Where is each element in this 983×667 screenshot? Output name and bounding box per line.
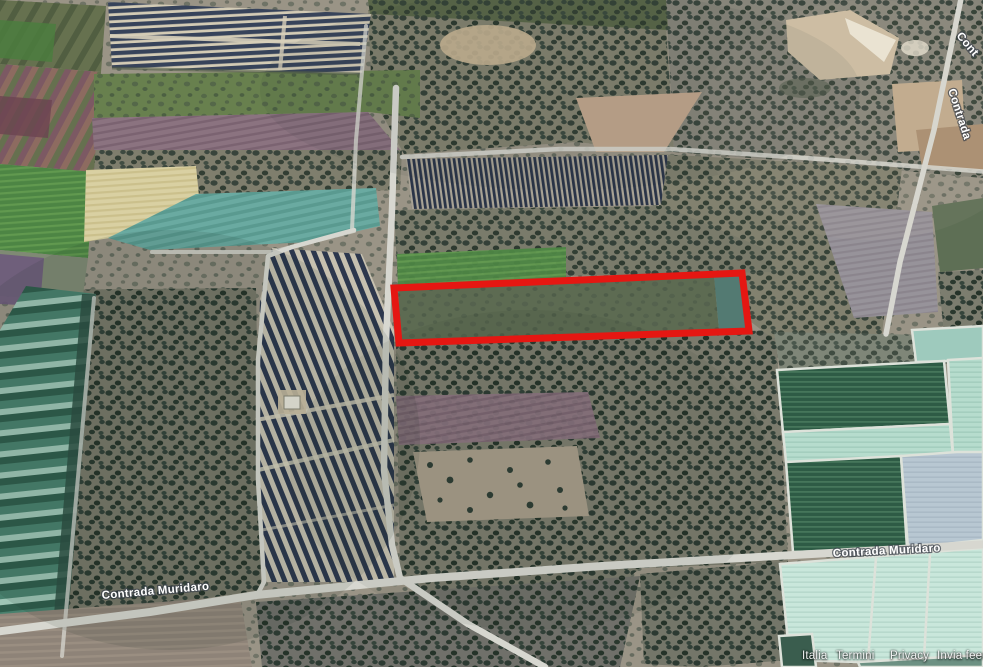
attribution-terms-link[interactable]: Termini [836, 650, 874, 662]
greenhouse-fields-southeast [777, 326, 983, 667]
satellite-imagery: Contrada Muridaro Contrada Muridaro Cont… [0, 0, 983, 667]
attribution-privacy-link[interactable]: Privacy [890, 650, 929, 662]
attribution-region-link[interactable]: Italia [802, 650, 828, 662]
attribution-feedback-link[interactable]: Invia feedb [937, 650, 983, 662]
map-viewport[interactable]: Contrada Muridaro Contrada Muridaro Cont… [0, 0, 983, 667]
